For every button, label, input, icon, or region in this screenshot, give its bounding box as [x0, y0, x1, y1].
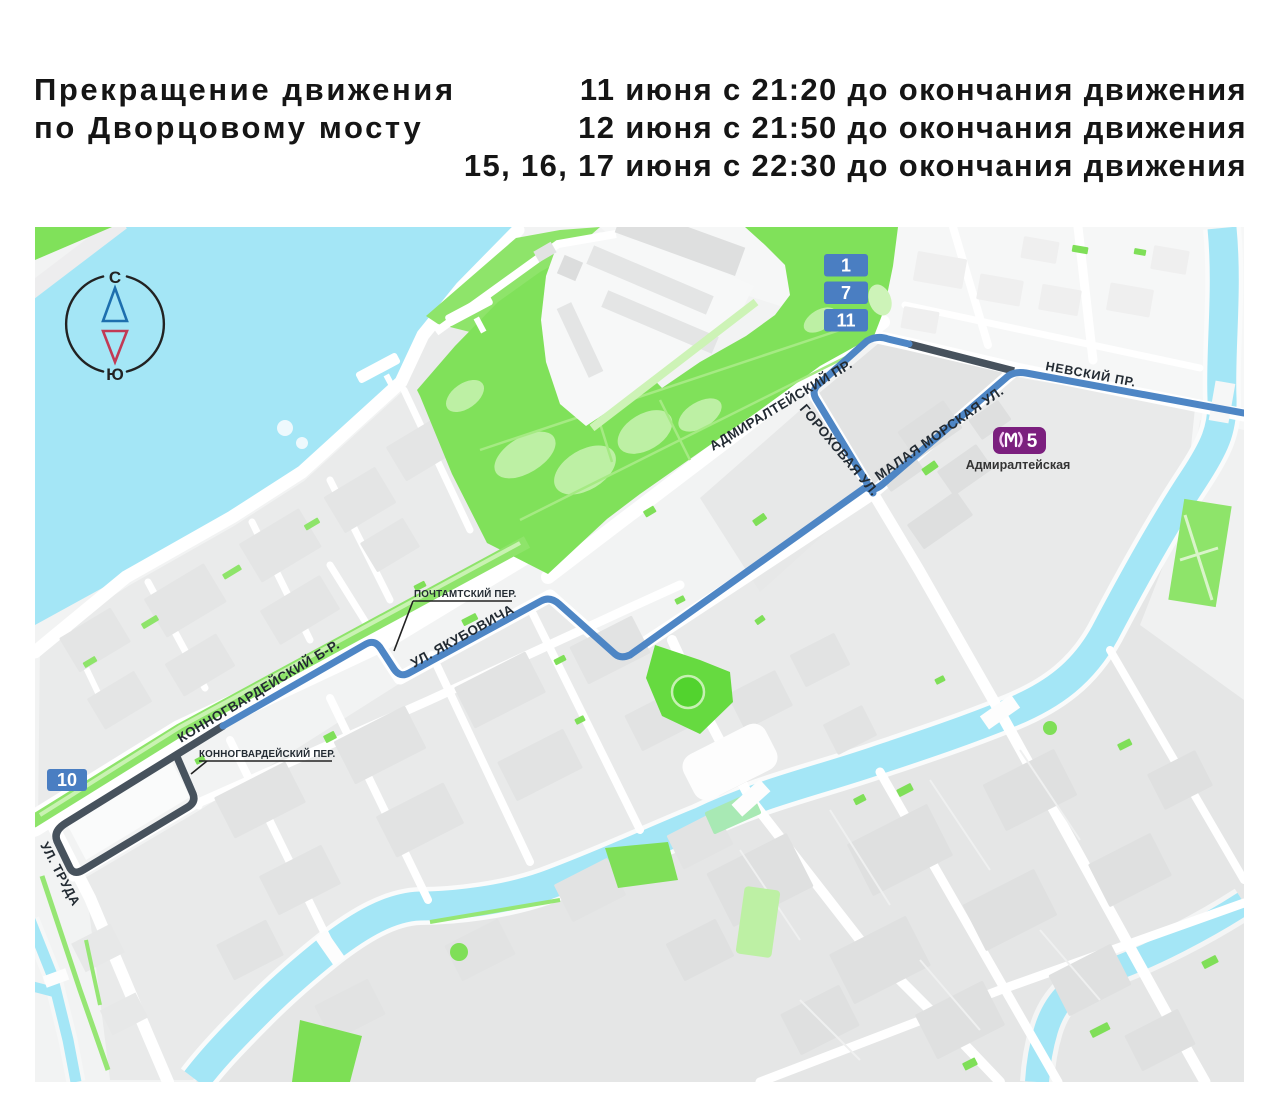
- svg-text:Ю: Ю: [106, 365, 124, 384]
- svg-text:ПОЧТАМТСКИЙ ПЕР.: ПОЧТАМТСКИЙ ПЕР.: [414, 588, 517, 600]
- svg-text:1: 1: [841, 255, 851, 275]
- svg-text:Адмиралтейская: Адмиралтейская: [966, 458, 1071, 472]
- svg-text:10: 10: [57, 770, 77, 790]
- svg-text:11: 11: [836, 310, 855, 330]
- svg-text:7: 7: [841, 283, 851, 303]
- svg-text:С: С: [109, 268, 121, 287]
- svg-text:5: 5: [1027, 431, 1038, 452]
- svg-text:КОННОГВАРДЕЙСКИЙ ПЕР.: КОННОГВАРДЕЙСКИЙ ПЕР.: [199, 748, 336, 760]
